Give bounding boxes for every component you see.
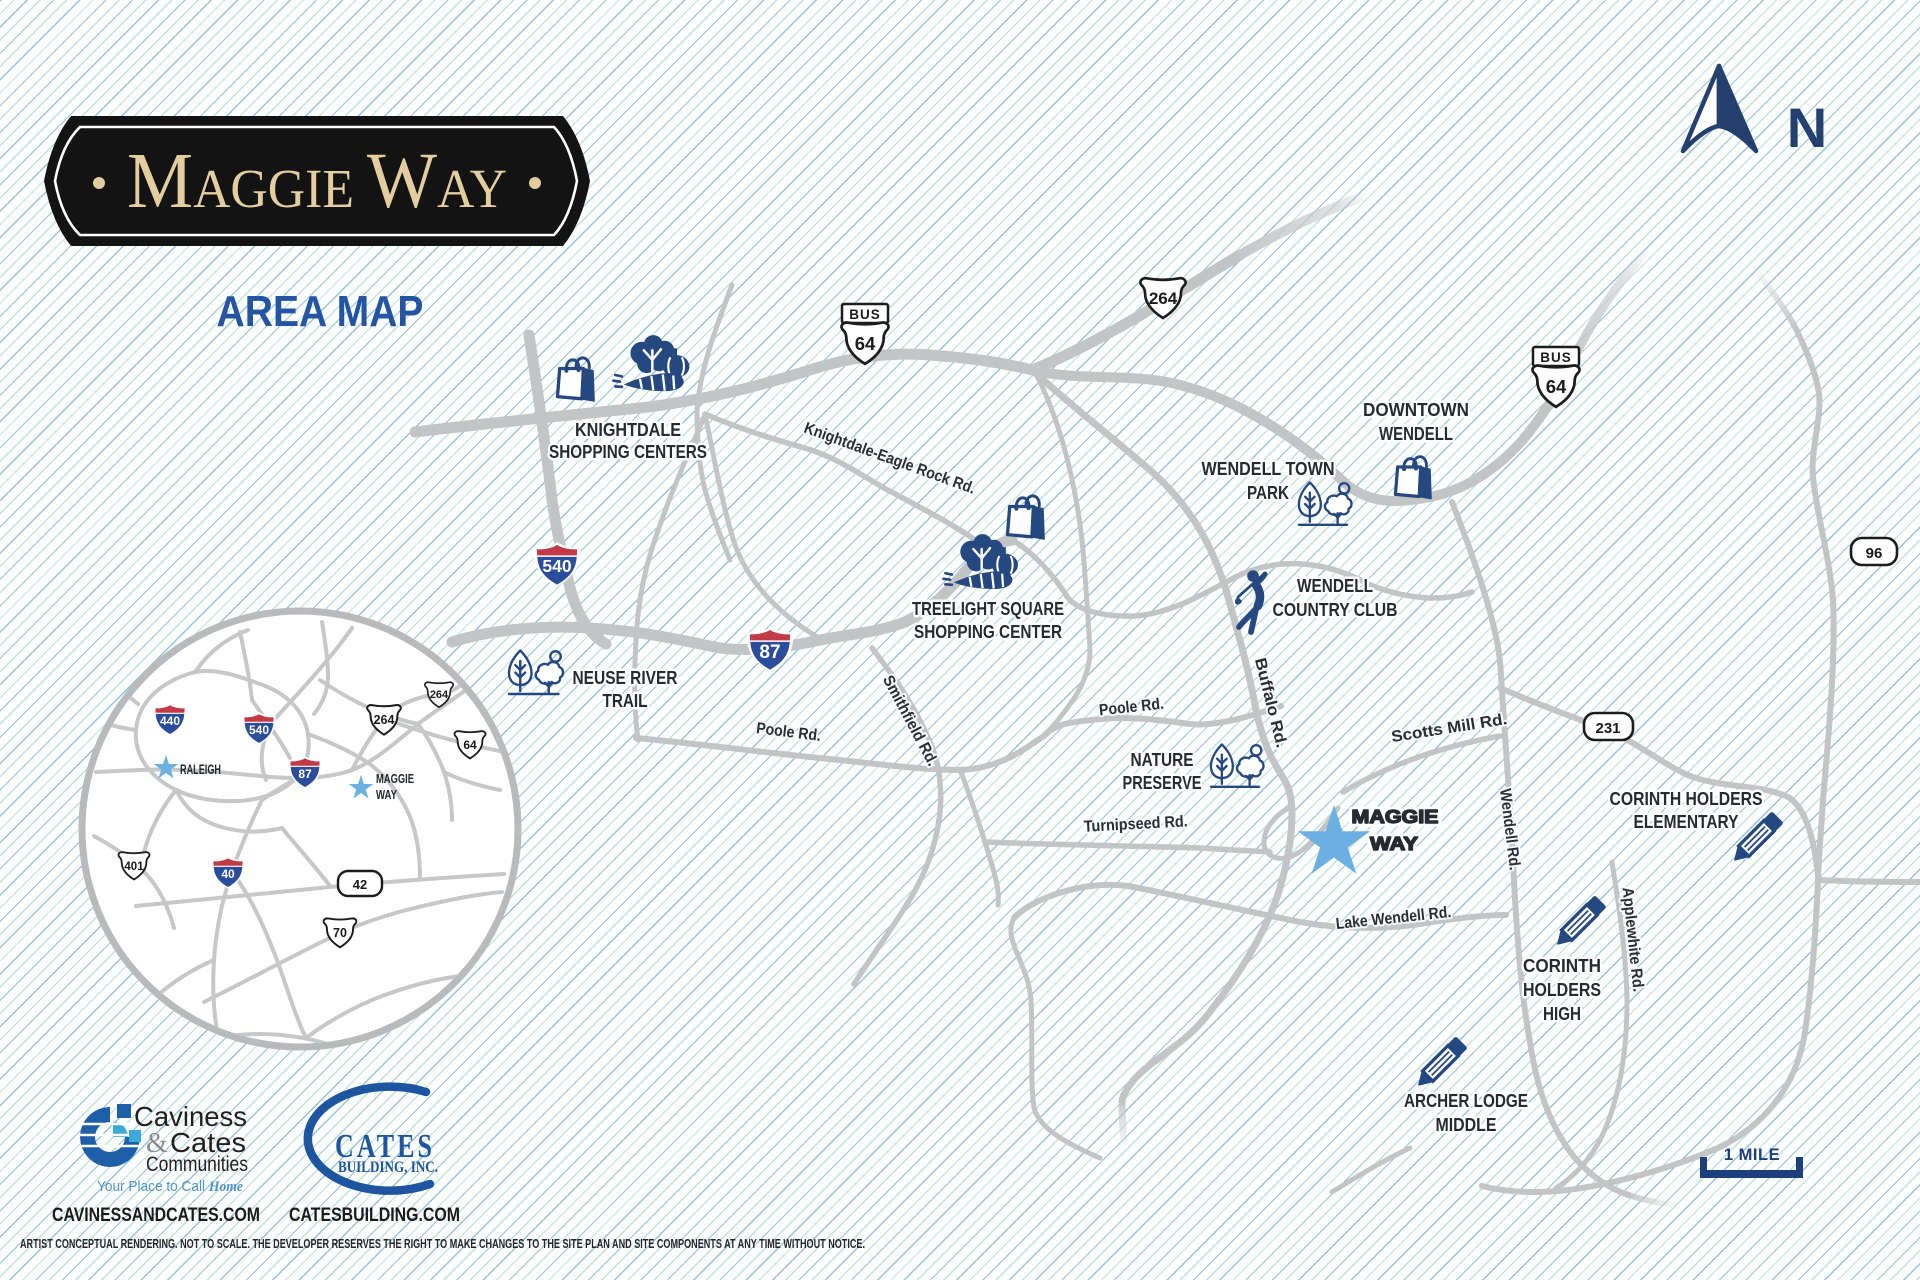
svg-text:BUS: BUS — [849, 307, 881, 322]
svg-text:Scotts Mill Rd.: Scotts Mill Rd. — [1390, 711, 1508, 746]
svg-text:MIDDLE: MIDDLE — [1436, 1115, 1497, 1135]
svg-text:COUNTRY CLUB: COUNTRY CLUB — [1273, 600, 1398, 620]
svg-text:Poole Rd.: Poole Rd. — [755, 720, 822, 745]
svg-text:HOLDERS: HOLDERS — [1523, 980, 1601, 1000]
svg-text:KNIGHTDALE: KNIGHTDALE — [575, 420, 681, 440]
svg-text:CORINTH: CORINTH — [1523, 956, 1601, 976]
svg-text:N: N — [1787, 96, 1827, 159]
svg-text:WENDELL: WENDELL — [1297, 576, 1373, 596]
svg-text:87: 87 — [759, 642, 780, 663]
svg-text:AREA MAP: AREA MAP — [217, 287, 424, 336]
svg-text:1 MILE: 1 MILE — [1724, 1146, 1780, 1164]
svg-text:HIGH: HIGH — [1543, 1004, 1581, 1024]
svg-text:WAY: WAY — [376, 788, 398, 802]
svg-text:Poole Rd.: Poole Rd. — [1098, 696, 1164, 720]
svg-text:SHOPPING CENTER: SHOPPING CENTER — [914, 622, 1062, 642]
svg-text:ARTIST CONCEPTUAL RENDERING. N: ARTIST CONCEPTUAL RENDERING. NOT TO SCAL… — [20, 1236, 865, 1251]
svg-text:ELEMENTARY: ELEMENTARY — [1634, 812, 1739, 832]
svg-text:NATURE: NATURE — [1131, 750, 1194, 770]
svg-text:540: 540 — [249, 723, 269, 737]
svg-text:WENDELL TOWN: WENDELL TOWN — [1202, 459, 1335, 479]
svg-text:64: 64 — [1546, 376, 1567, 397]
svg-text:231: 231 — [1595, 720, 1620, 737]
svg-text:CAVINESSANDCATES.COM: CAVINESSANDCATES.COM — [52, 1205, 260, 1226]
svg-text:540: 540 — [542, 556, 571, 576]
svg-text:BUS: BUS — [1540, 350, 1572, 365]
svg-text:WAY: WAY — [1370, 834, 1418, 854]
svg-text:CATESBUILDING.COM: CATESBUILDING.COM — [289, 1205, 460, 1226]
svg-text:440: 440 — [160, 714, 180, 728]
svg-text:Communities: Communities — [146, 1153, 248, 1176]
svg-text:CORINTH HOLDERS: CORINTH HOLDERS — [1610, 789, 1763, 809]
svg-text:PARK: PARK — [1247, 483, 1289, 503]
svg-text:TRAIL: TRAIL — [603, 691, 648, 711]
svg-text:264: 264 — [374, 713, 395, 727]
svg-text:Smithfield Rd.: Smithfield Rd. — [879, 673, 941, 769]
svg-text:MAGGIE: MAGGIE — [376, 772, 414, 786]
svg-text:Wendell Rd.: Wendell Rd. — [1496, 788, 1523, 871]
svg-text:NEUSE RIVER: NEUSE RIVER — [573, 668, 678, 688]
svg-text:42: 42 — [353, 877, 367, 892]
svg-text:Your Place to Call Home: Your Place to Call Home — [97, 1178, 243, 1195]
svg-text:64: 64 — [855, 333, 876, 354]
svg-text:DOWNTOWN: DOWNTOWN — [1363, 400, 1469, 420]
svg-text:96: 96 — [1866, 545, 1883, 562]
svg-text:WENDELL: WENDELL — [1379, 424, 1453, 444]
svg-text:ARCHER LODGE: ARCHER LODGE — [1404, 1091, 1528, 1111]
svg-text:SHOPPING CENTERS: SHOPPING CENTERS — [549, 442, 707, 462]
svg-text:401: 401 — [124, 861, 144, 873]
svg-text:64: 64 — [463, 738, 477, 752]
svg-text:40: 40 — [221, 867, 235, 881]
svg-text:TREELIGHT SQUARE: TREELIGHT SQUARE — [912, 599, 1064, 619]
svg-text:Turnipseed Rd.: Turnipseed Rd. — [1083, 813, 1188, 835]
svg-text:87: 87 — [298, 767, 312, 781]
svg-text:264: 264 — [1149, 289, 1178, 308]
svg-text:RALEIGH: RALEIGH — [180, 762, 221, 777]
svg-text:MAGGIE: MAGGIE — [1352, 807, 1439, 827]
svg-text:70: 70 — [333, 926, 347, 940]
svg-text:BUILDING, INC.: BUILDING, INC. — [338, 1159, 438, 1176]
svg-text:PRESERVE: PRESERVE — [1123, 773, 1202, 793]
svg-text:264: 264 — [430, 689, 449, 701]
